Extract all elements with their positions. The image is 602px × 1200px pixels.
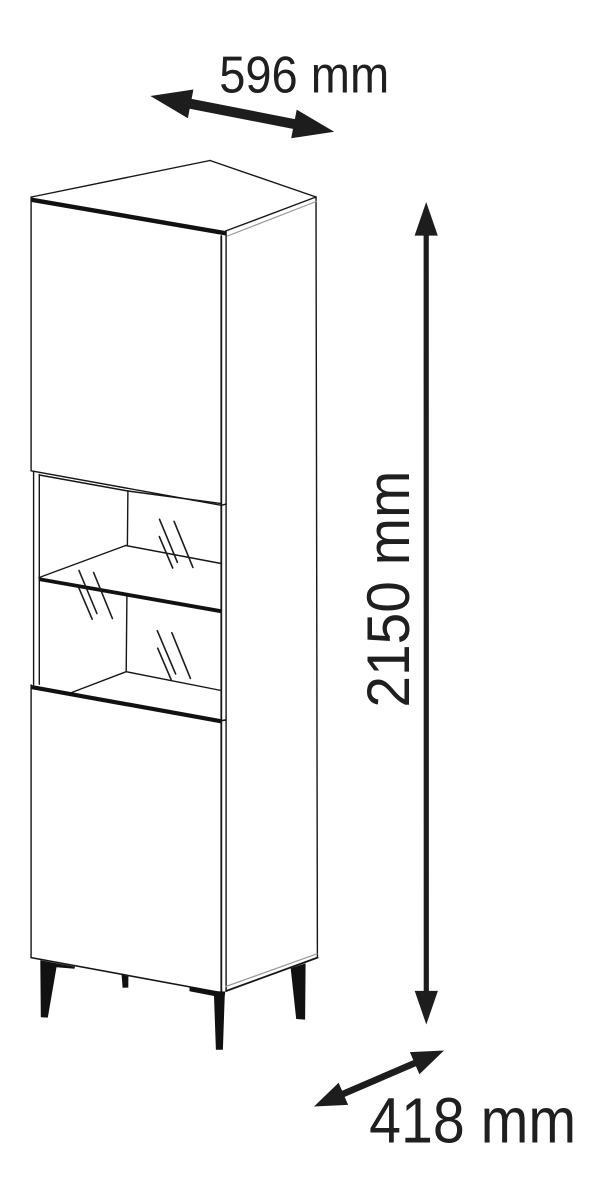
svg-text:418 mm: 418 mm xyxy=(369,1084,576,1156)
svg-text:2150 mm: 2150 mm xyxy=(354,471,422,708)
svg-text:596 mm: 596 mm xyxy=(219,47,389,105)
